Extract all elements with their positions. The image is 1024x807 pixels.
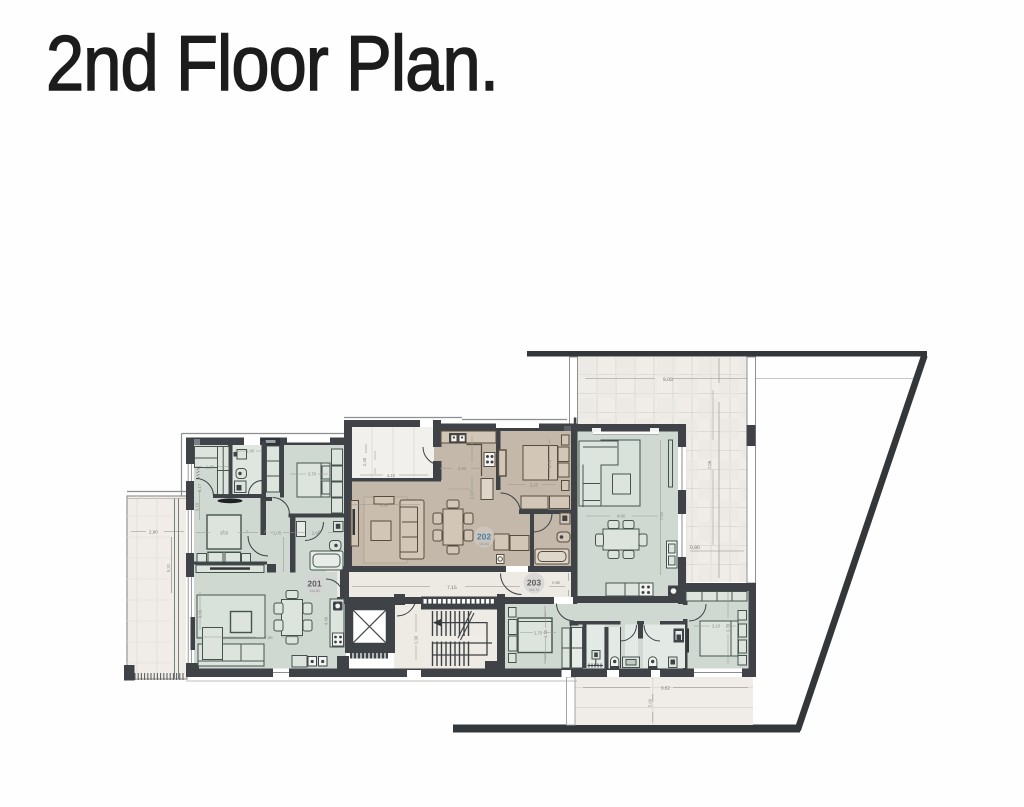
svg-text:0,88: 0,88 — [552, 580, 561, 585]
svg-text:116,76: 116,76 — [529, 588, 539, 592]
svg-text:7,61: 7,61 — [659, 511, 664, 520]
svg-text:1,80: 1,80 — [206, 465, 215, 470]
svg-text:7,26: 7,26 — [264, 635, 273, 640]
svg-text:3,10: 3,10 — [195, 502, 200, 511]
svg-text:1,05: 1,05 — [273, 531, 282, 536]
svg-text:5,06: 5,06 — [648, 698, 653, 707]
svg-text:113,00: 113,00 — [309, 589, 319, 593]
svg-text:3,73: 3,73 — [726, 623, 731, 632]
svg-text:3,95: 3,95 — [198, 609, 203, 618]
svg-text:4,15: 4,15 — [387, 473, 396, 478]
svg-text:4,40: 4,40 — [324, 616, 329, 625]
svg-text:0,90: 0,90 — [690, 545, 700, 551]
svg-text:5,31: 5,31 — [166, 563, 171, 572]
svg-text:4,15: 4,15 — [543, 629, 548, 638]
svg-text:3,10: 3,10 — [712, 624, 721, 629]
svg-text:1,30: 1,30 — [414, 635, 419, 644]
svg-text:202: 202 — [477, 532, 491, 542]
svg-text:2,80: 2,80 — [149, 530, 158, 535]
svg-text:2,97: 2,97 — [470, 490, 475, 499]
svg-text:1,90: 1,90 — [246, 449, 255, 454]
svg-text:4,90: 4,90 — [617, 514, 626, 519]
svg-text:4,55: 4,55 — [380, 503, 389, 508]
svg-text:3,17: 3,17 — [197, 483, 202, 492]
svg-text:3,76: 3,76 — [547, 459, 552, 468]
svg-text:3,65: 3,65 — [220, 531, 229, 536]
svg-text:3,70: 3,70 — [308, 472, 317, 477]
svg-text:115,00: 115,00 — [479, 542, 489, 546]
svg-text:7,15: 7,15 — [447, 585, 457, 591]
svg-text:2,80: 2,80 — [312, 531, 321, 536]
svg-text:2,90: 2,90 — [458, 466, 467, 471]
svg-text:9,05: 9,05 — [663, 377, 673, 383]
svg-text:3,75: 3,75 — [534, 631, 543, 636]
svg-text:2nd Floor Plan.: 2nd Floor Plan. — [46, 19, 498, 107]
svg-text:203: 203 — [527, 578, 541, 588]
svg-text:3,25: 3,25 — [530, 483, 539, 488]
svg-text:7,08: 7,08 — [707, 460, 712, 469]
svg-text:2,40: 2,40 — [362, 457, 367, 466]
svg-text:9,62: 9,62 — [661, 686, 670, 691]
svg-text:201: 201 — [307, 579, 321, 589]
